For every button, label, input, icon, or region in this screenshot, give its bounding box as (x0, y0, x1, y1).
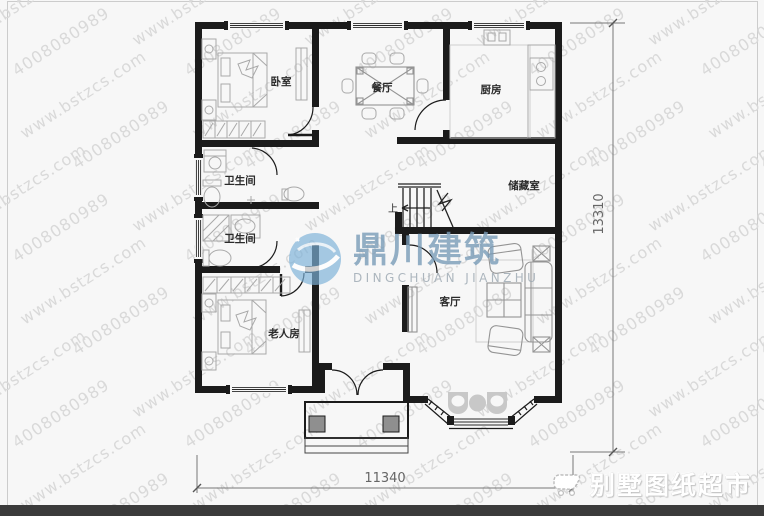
kitchen-door (415, 100, 446, 130)
globe-icon (286, 230, 344, 288)
windows (194, 21, 537, 429)
counter (528, 45, 555, 138)
floor-plan-page: www.bstzcs.com4008080989www.bstzcs.com40… (0, 0, 764, 516)
watermark-cn-text: 鼎川建筑 (353, 233, 539, 270)
bottom-bar (0, 505, 764, 516)
room-label-dining: 餐厅 (371, 81, 393, 94)
bathroom2-door (252, 241, 277, 268)
stairs-up-label: 上 (388, 203, 398, 215)
stairs (398, 184, 453, 227)
entrance-porch (305, 402, 408, 453)
window-bathroom2-left (194, 214, 203, 263)
dimension-width-value: 11340 (364, 471, 405, 486)
room-label-storage: 储藏室 (508, 179, 540, 192)
elderly-furniture (202, 277, 310, 370)
walls (195, 22, 562, 403)
wardrobe (203, 277, 290, 293)
dimension-height-value: 13310 (592, 193, 607, 234)
column (309, 416, 325, 432)
bstzcs-corner-logo: 别墅图纸超市 (551, 466, 752, 502)
room-label-living: 客厅 (439, 295, 461, 308)
window-bathroom1-left (194, 154, 203, 201)
window-dining-top (347, 21, 408, 30)
bedroom-furniture (202, 39, 307, 138)
bedroom-door (288, 107, 313, 135)
window-bedroom-top (224, 21, 289, 30)
wardrobe (203, 121, 265, 138)
room-label-kitchen: 厨房 (481, 83, 502, 96)
bay-chairs (448, 392, 507, 414)
kitchen-furniture (450, 30, 555, 138)
step (305, 446, 408, 453)
room-label-elderly: 老人房 (267, 327, 300, 340)
bed (218, 53, 267, 107)
corner-logo-text: 别墅图纸超市 (590, 466, 752, 502)
step (305, 438, 408, 446)
watermark-en-text: DINGCHUAN JIANZHU (353, 271, 539, 285)
column (383, 416, 399, 432)
window-elderly-bottom (226, 385, 292, 394)
dimension-height: 13310 (570, 19, 625, 456)
room-label-bathroom-2: 卫生间 (224, 232, 256, 245)
dingchuan-watermark-logo: 鼎川建筑 DINGCHUAN JIANZHU (286, 230, 539, 288)
dimension-width: 11340 (193, 455, 577, 493)
bathroom1-door (252, 148, 277, 175)
bay-table (469, 395, 486, 412)
room-label-bedroom: 卧室 (271, 75, 292, 88)
cart-icon (551, 471, 583, 497)
window-kitchen-top (468, 21, 530, 30)
room-label-bathroom-1: 卫生间 (224, 174, 256, 187)
toilet (209, 250, 231, 266)
entrance-double-door (332, 370, 383, 395)
armchair (487, 325, 523, 356)
